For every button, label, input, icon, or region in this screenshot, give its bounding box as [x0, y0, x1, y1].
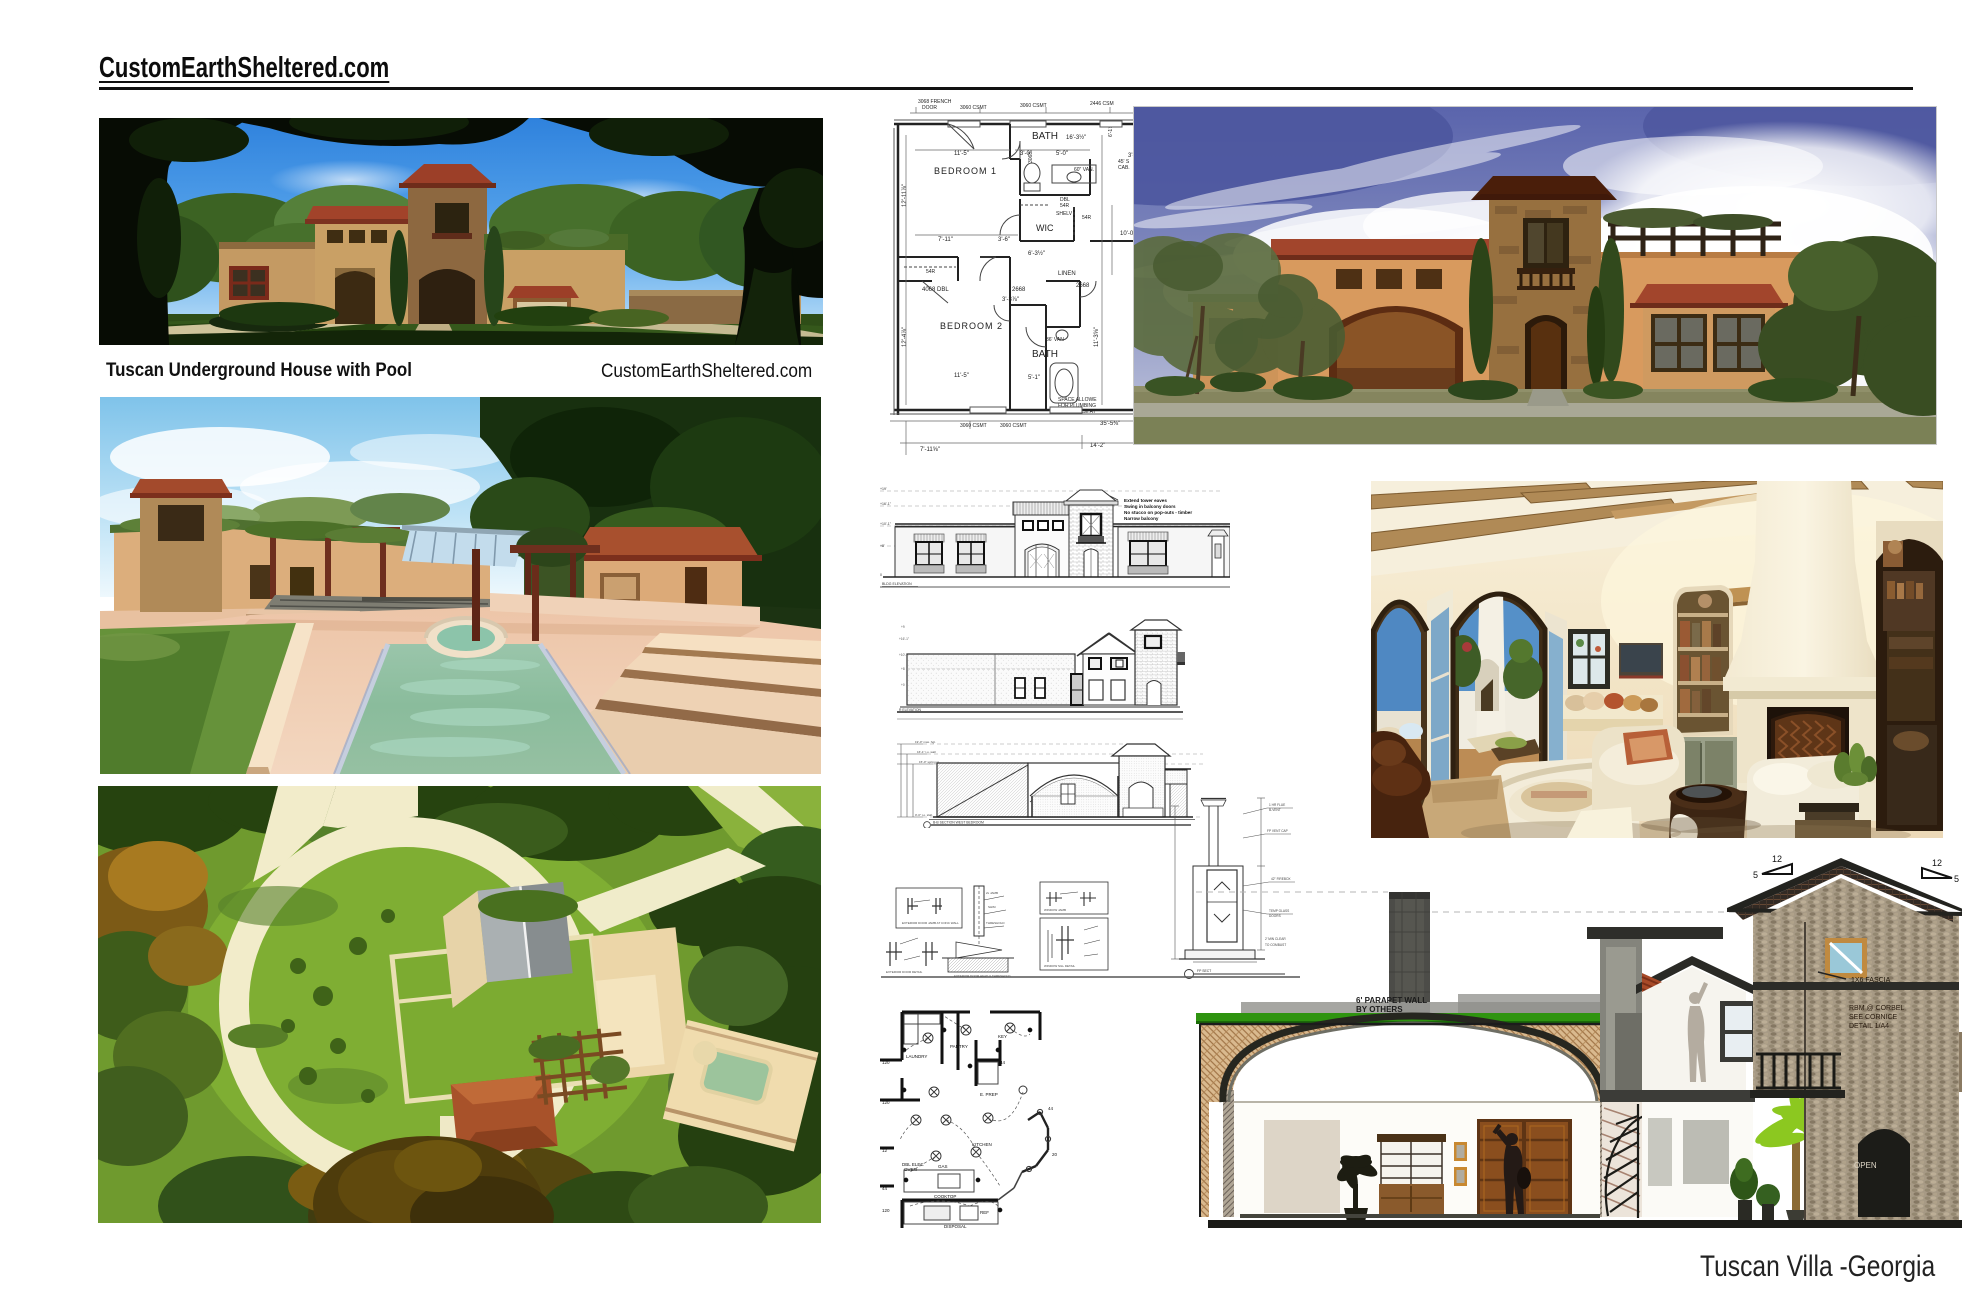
- svg-text:11'-3⅝": 11'-3⅝": [1094, 327, 1100, 347]
- svg-text:1 HR FLUE: 1 HR FLUE: [1269, 803, 1285, 807]
- svg-text:11'-5": 11'-5": [954, 373, 969, 379]
- svg-text:3060 CSMT: 3060 CSMT: [1000, 423, 1027, 429]
- svg-text:54R: 54R: [1060, 203, 1070, 209]
- svg-text:COOKTOP: COOKTOP: [934, 1194, 956, 1199]
- svg-text:12: 12: [882, 1148, 888, 1153]
- svg-text:SHELV: SHELV: [1056, 211, 1073, 217]
- svg-text:B-VENT: B-VENT: [1269, 808, 1281, 812]
- svg-text:120: 120: [882, 1060, 890, 1065]
- svg-text:BEDROOM 2: BEDROOM 2: [940, 321, 1003, 331]
- svg-text:2668: 2668: [1076, 283, 1090, 289]
- svg-text:+9: +9: [901, 625, 905, 629]
- svg-text:SHIM: SHIM: [988, 905, 996, 909]
- svg-text:2x JAMB: 2x JAMB: [986, 891, 998, 895]
- svg-text:19'-0" max. hgt.: 19'-0" max. hgt.: [915, 740, 936, 744]
- svg-text:+0: +0: [901, 683, 905, 687]
- svg-text:44: 44: [1000, 1060, 1006, 1065]
- svg-text:DISPOSAL: DISPOSAL: [944, 1224, 967, 1229]
- svg-text:WIC: WIC: [1036, 223, 1054, 233]
- svg-text:5: 5: [1954, 874, 1959, 884]
- svg-text:REF: REF: [980, 1210, 989, 1215]
- svg-text:OPEN: OPEN: [1854, 1161, 1877, 1170]
- svg-text:6'-3½": 6'-3½": [1028, 250, 1045, 257]
- svg-text:7'-11": 7'-11": [938, 237, 953, 243]
- svg-text:+8': +8': [880, 544, 885, 548]
- svg-text:0: 0: [880, 573, 882, 577]
- svg-text:0'-0" t.o. slab: 0'-0" t.o. slab: [915, 813, 933, 817]
- svg-text:LINEN: LINEN: [1058, 271, 1076, 277]
- svg-text:5: 5: [1753, 870, 1758, 880]
- svg-text:12: 12: [1772, 854, 1782, 864]
- svg-text:44: 44: [882, 1186, 888, 1191]
- svg-text:3060 CSMT: 3060 CSMT: [960, 105, 987, 111]
- svg-text:Swing in balcony doors: Swing in balcony doors: [1124, 504, 1176, 509]
- svg-text:RBM @ CORBEL: RBM @ CORBEL: [1849, 1005, 1904, 1012]
- svg-text:35'-5⅜": 35'-5⅜": [1100, 421, 1120, 427]
- svg-text:12'-4⅞": 12'-4⅞": [902, 327, 908, 347]
- svg-text:FP VENT CAP: FP VENT CAP: [1267, 829, 1288, 833]
- svg-text:EXTERIOR DOOR DETAIL: EXTERIOR DOOR DETAIL: [886, 970, 923, 974]
- svg-text:3060 CSMT: 3060 CSMT: [1020, 103, 1047, 109]
- svg-text:BEDROOM 1: BEDROOM 1: [934, 166, 997, 176]
- svg-text:R ELEVATION: R ELEVATION: [899, 708, 921, 712]
- svg-text:3'-6": 3'-6": [998, 237, 1010, 243]
- svg-text:WINDOW JAMB: WINDOW JAMB: [1044, 908, 1066, 912]
- svg-text:+16'-1": +16'-1": [899, 637, 909, 641]
- svg-text:20: 20: [1052, 1152, 1058, 1157]
- svg-text:BY OTHERS: BY OTHERS: [1356, 1005, 1403, 1014]
- svg-text:3060 CSMT: 3060 CSMT: [960, 423, 987, 429]
- svg-text:16'-3½": 16'-3½": [1066, 134, 1086, 141]
- svg-text:PANTRY: PANTRY: [950, 1044, 968, 1049]
- svg-text:SEE CORNICE: SEE CORNICE: [1849, 1014, 1898, 1021]
- svg-text:6' PARAPET WALL: 6' PARAPET WALL: [1356, 996, 1427, 1005]
- svg-text:OVEN: OVEN: [904, 1167, 917, 1172]
- svg-text:BATH: BATH: [1032, 349, 1058, 360]
- svg-text:WINDOW SILL DETAIL: WINDOW SILL DETAIL: [1044, 964, 1076, 968]
- svg-text:+10'-1": +10'-1": [880, 522, 892, 526]
- svg-text:B-B SECTION WEST BEDROOM: B-B SECTION WEST BEDROOM: [933, 821, 984, 825]
- svg-text:7'-11⅝": 7'-11⅝": [920, 447, 940, 453]
- svg-text:54R: 54R: [1082, 215, 1092, 221]
- svg-text:DETAIL 1/A4: DETAIL 1/A4: [1849, 1023, 1889, 1030]
- svg-text:+16'-1": +16'-1": [880, 502, 892, 506]
- svg-text:3068: 3068: [1028, 152, 1034, 163]
- svg-text:EXTERIOR DOOR JAMB AT CONC WAL: EXTERIOR DOOR JAMB AT CONC WALL: [902, 921, 959, 925]
- svg-text:2446 CSM: 2446 CSM: [1090, 101, 1114, 107]
- svg-text:12'-11⅞": 12'-11⅞": [902, 184, 908, 207]
- svg-text:BLDG ELEVATION: BLDG ELEVATION: [882, 582, 912, 586]
- svg-text:16'-1" t.o. wall: 16'-1" t.o. wall: [917, 750, 936, 754]
- svg-text:54R: 54R: [926, 269, 936, 275]
- svg-text:2668: 2668: [1012, 287, 1026, 293]
- svg-text:Narrow balcony: Narrow balcony: [1124, 516, 1159, 521]
- svg-text:GAS: GAS: [938, 1164, 948, 1169]
- svg-text:+19': +19': [880, 487, 887, 491]
- svg-text:E. PREP: E. PREP: [980, 1092, 998, 1097]
- svg-text:KITCHEN: KITCHEN: [972, 1142, 992, 1147]
- svg-text:CAB.: CAB.: [1118, 165, 1130, 171]
- svg-text:14'-2": 14'-2": [1090, 443, 1105, 449]
- svg-text:5'-0": 5'-0": [1056, 151, 1068, 157]
- svg-text:44: 44: [1048, 1106, 1054, 1111]
- svg-text:THRESHOLD: THRESHOLD: [986, 921, 1005, 925]
- svg-text:120: 120: [882, 1208, 890, 1213]
- svg-text:5'-1": 5'-1": [1028, 375, 1040, 381]
- svg-text:Extend tower eaves: Extend tower eaves: [1124, 498, 1167, 503]
- svg-text:KEY: KEY: [998, 1034, 1007, 1039]
- svg-text:LAUNDRY: LAUNDRY: [906, 1054, 927, 1059]
- svg-text:120: 120: [882, 1100, 890, 1105]
- svg-text:No stucco on pop-outs - timber: No stucco on pop-outs - timber: [1124, 510, 1192, 515]
- svg-text:12: 12: [1932, 858, 1942, 868]
- svg-text:BATH: BATH: [1032, 131, 1058, 142]
- svg-text:DOOR: DOOR: [922, 105, 937, 111]
- svg-text:1X6 FASCIA: 1X6 FASCIA: [1851, 977, 1891, 984]
- svg-text:11'-5": 11'-5": [954, 151, 969, 157]
- svg-text:+8: +8: [901, 667, 905, 671]
